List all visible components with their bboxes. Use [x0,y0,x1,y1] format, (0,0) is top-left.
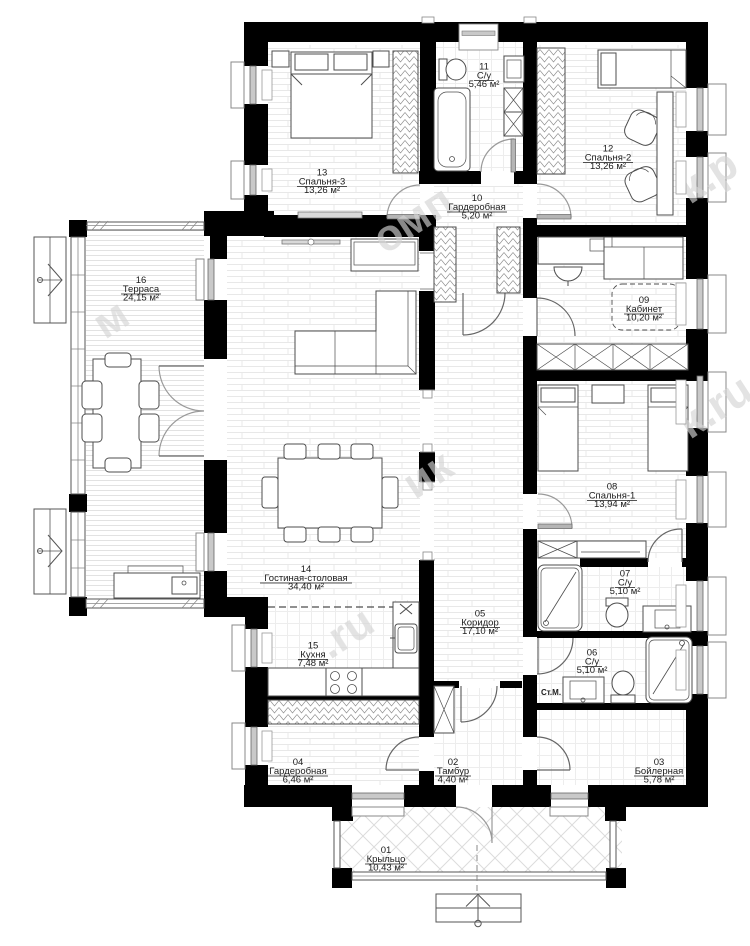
svg-text:Ст.М.: Ст.М. [541,688,561,697]
